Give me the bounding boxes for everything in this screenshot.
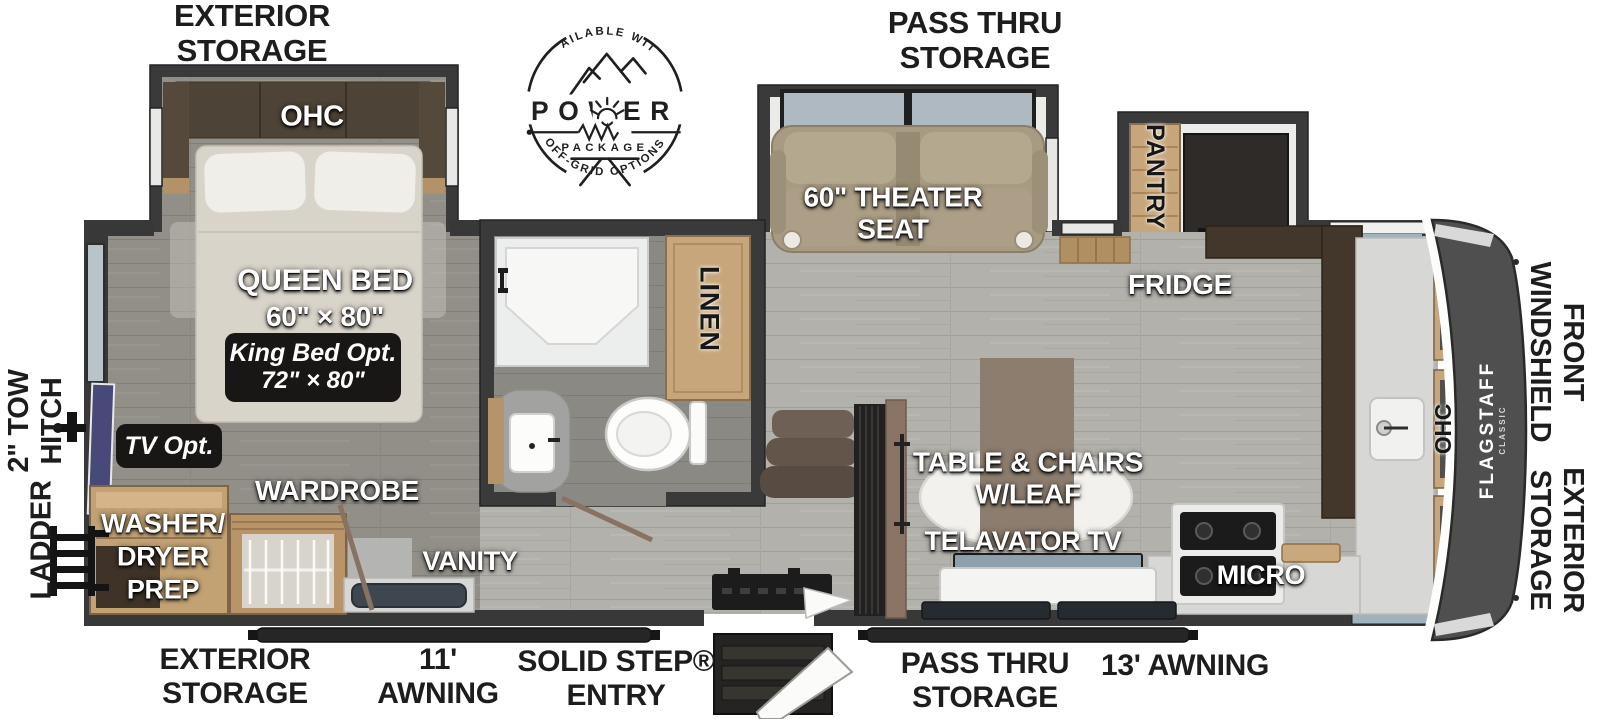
- nightstand-right: [419, 178, 445, 194]
- pillow-right: [313, 150, 417, 214]
- label-linen: LINEN: [694, 266, 725, 352]
- label-tow-hitch: 2" TOW HITCH: [3, 369, 69, 472]
- label-pass-thru-top: PASS THRU STORAGE: [888, 5, 1062, 75]
- label-pantry: PANTRY: [1141, 124, 1169, 230]
- pillow-left: [203, 150, 307, 214]
- buffet-counter: [1060, 237, 1130, 263]
- awning-13-bar: [866, 628, 1190, 642]
- fridge: [1184, 134, 1288, 237]
- kitchen-window-small: [1062, 223, 1114, 234]
- nightstand-left: [163, 178, 189, 194]
- brand-name: FLAGSTAFF: [1478, 361, 1497, 500]
- tv-option-box: TV Opt.: [116, 424, 222, 468]
- label-solid-step: SOLID STEP® ENTRY: [517, 645, 714, 713]
- label-exterior-storage-front: EXTERIOR STORAGE: [1523, 467, 1589, 613]
- telavator-tv-cabinet: [940, 568, 1156, 604]
- label-table-chairs: TABLE & CHAIRS W/LEAF: [913, 446, 1143, 509]
- floorplan-canvas: AVAILABLE WITH OFF-GRID OPTIONS POWER PA…: [0, 0, 1600, 719]
- brand-mark: FLAGSTAFF CLASSIC: [1478, 361, 1508, 500]
- bedroom-slide-window-left: [150, 108, 162, 186]
- rear-window: [87, 244, 104, 382]
- label-exterior-storage-top: EXTERIOR STORAGE: [174, 0, 330, 68]
- label-vanity: VANITY: [422, 546, 517, 577]
- label-ladder: LADDER: [26, 480, 59, 599]
- label-ohc-bedroom: OHC: [280, 101, 344, 134]
- label-queen-size: 60" × 80": [266, 301, 384, 333]
- label-front-windshield: FRONT WINDSHIELD: [1523, 262, 1589, 443]
- label-exterior-storage-bottom: EXTERIOR STORAGE: [160, 643, 311, 711]
- power-package-badge: AVAILABLE WITH OFF-GRID OPTIONS POWER PA…: [512, 8, 686, 185]
- label-fridge: FRIDGE: [1128, 269, 1232, 301]
- stair-divider: [854, 400, 906, 618]
- bedroom-slide-window-right: [446, 108, 458, 186]
- label-micro: MICRO: [1217, 560, 1306, 591]
- label-awning-13: 13' AWNING: [1101, 649, 1269, 683]
- label-wardrobe: WARDROBE: [255, 475, 419, 507]
- mountains-icon: [568, 54, 645, 98]
- label-pass-thru-bottom: PASS THRU STORAGE: [901, 647, 1069, 715]
- label-awning-11: 11' AWNING: [377, 643, 499, 711]
- badge-package: PACKAGE: [561, 142, 648, 154]
- brand-series: CLASSIC: [1497, 361, 1508, 500]
- label-queen-bed: QUEEN BED: [237, 264, 413, 298]
- king-opt-line2: 72" × 80": [225, 368, 401, 394]
- svg-text:AVAILABLE WITH: AVAILABLE WITH: [512, 8, 659, 56]
- label-theater-seat: 60" THEATER SEAT: [803, 181, 982, 244]
- awning-11-bar: [256, 628, 652, 642]
- king-opt-line1: King Bed Opt.: [225, 338, 401, 368]
- badge-available-with: AVAILABLE WITH: [512, 8, 659, 56]
- king-bed-option-box: King Bed Opt. 72" × 80": [225, 333, 401, 402]
- label-ohc-front: OHC: [1430, 404, 1456, 454]
- toilet-tank: [690, 402, 706, 464]
- label-telavator-tv: TELAVATOR TV: [925, 526, 1122, 557]
- label-washer-dryer: WASHER/ DRYER PREP: [101, 508, 225, 607]
- stairs: [760, 410, 862, 498]
- entry: [712, 568, 852, 719]
